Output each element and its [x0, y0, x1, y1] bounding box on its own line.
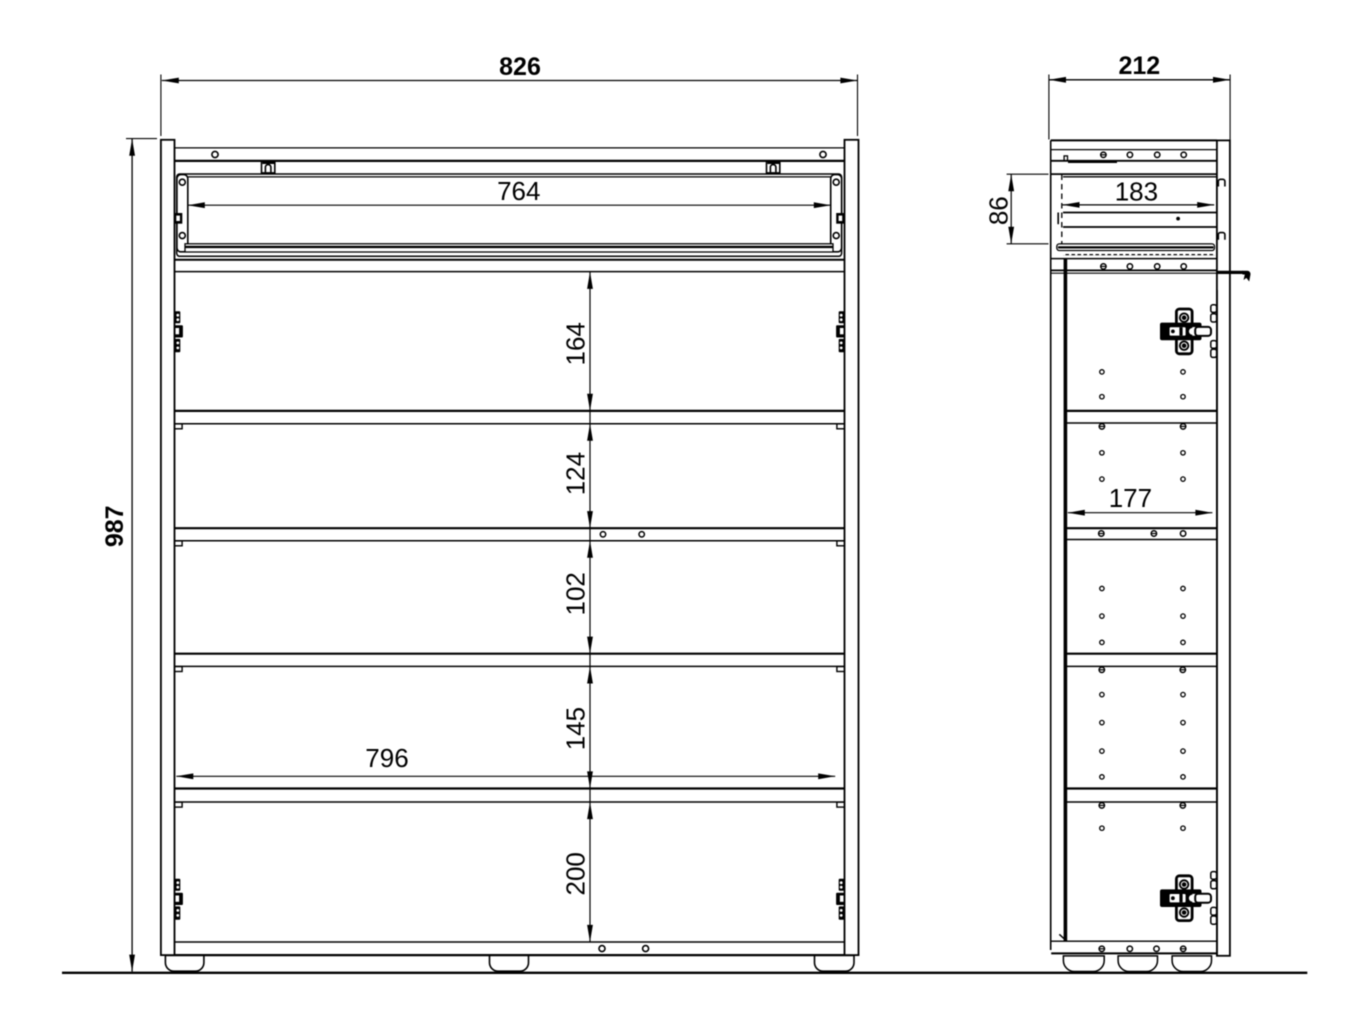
svg-text:86: 86 [983, 196, 1013, 225]
svg-text:102: 102 [561, 572, 591, 615]
svg-text:124: 124 [561, 452, 591, 495]
svg-text:987: 987 [101, 505, 129, 547]
svg-text:145: 145 [561, 707, 591, 750]
svg-text:796: 796 [365, 743, 408, 773]
svg-text:164: 164 [561, 322, 591, 365]
svg-text:177: 177 [1109, 483, 1152, 513]
svg-text:826: 826 [499, 53, 541, 81]
svg-text:183: 183 [1115, 177, 1158, 207]
svg-text:764: 764 [497, 176, 540, 206]
svg-text:212: 212 [1118, 52, 1160, 80]
svg-text:200: 200 [561, 852, 591, 895]
